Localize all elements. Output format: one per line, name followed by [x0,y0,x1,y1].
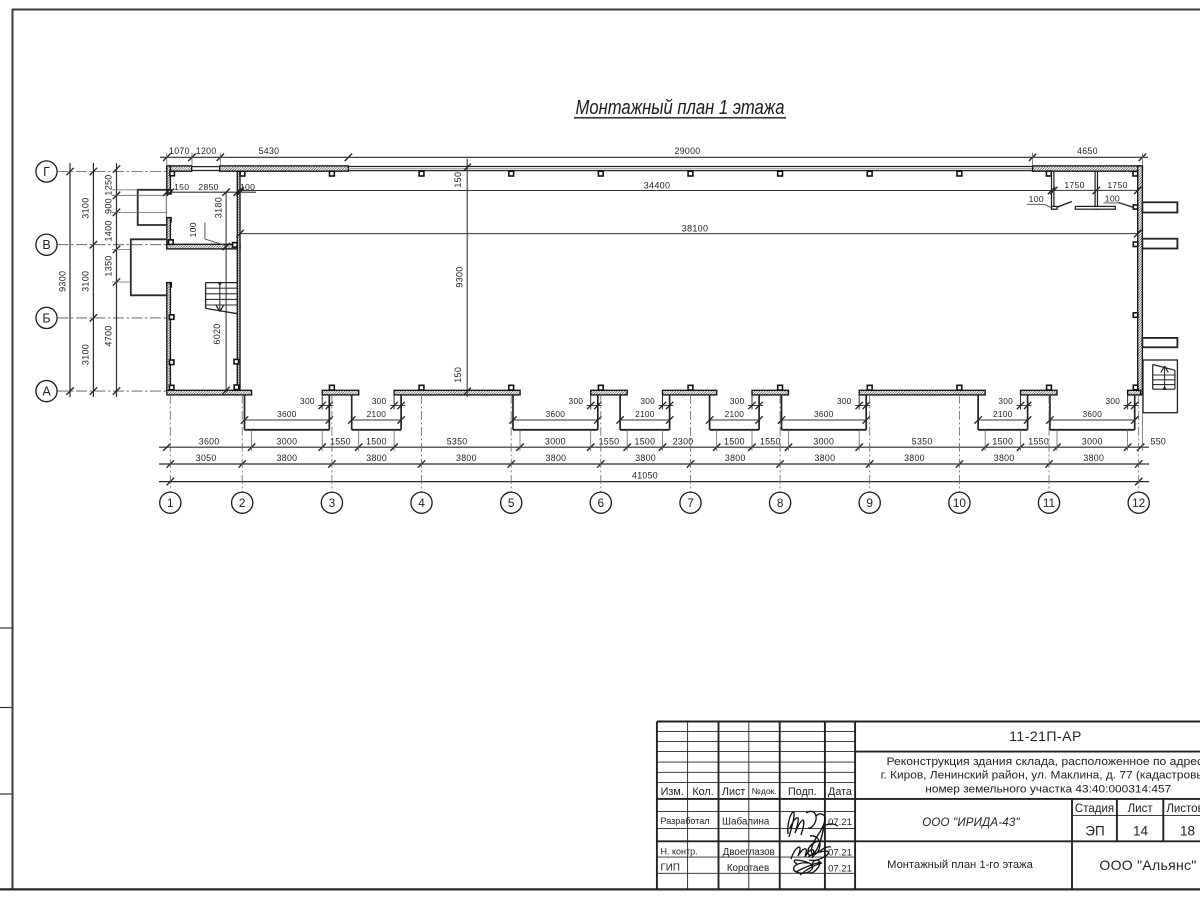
svg-text:38100: 38100 [682,223,709,233]
svg-text:150: 150 [453,172,463,188]
svg-text:3: 3 [329,496,336,510]
svg-text:18: 18 [1180,824,1195,839]
svg-text:2100: 2100 [725,409,745,419]
svg-text:3600: 3600 [277,409,297,419]
svg-text:Листов: Листов [1166,803,1200,815]
svg-text:3000: 3000 [545,437,566,447]
svg-text:Б: Б [42,311,50,325]
svg-text:300: 300 [837,396,852,406]
svg-text:ООО "ИРИДА-43": ООО "ИРИДА-43" [922,817,1020,829]
svg-text:3800: 3800 [456,453,477,463]
svg-text:2100: 2100 [635,409,655,419]
svg-text:Кол.: Кол. [692,786,713,798]
svg-text:Монтажный план 1-го этажа: Монтажный план 1-го этажа [887,859,1033,871]
svg-text:1: 1 [167,496,174,510]
svg-text:3800: 3800 [546,453,567,463]
svg-text:9300: 9300 [454,266,464,287]
svg-text:Стадия: Стадия [1075,803,1114,815]
svg-text:5350: 5350 [447,437,468,447]
svg-text:2: 2 [239,496,246,510]
svg-text:1550: 1550 [1028,437,1049,447]
svg-text:Н. контр.: Н. контр. [661,846,698,856]
svg-text:1350: 1350 [104,255,114,276]
svg-text:ООО "Альянс": ООО "Альянс" [1099,857,1196,873]
svg-text:1200: 1200 [196,146,217,156]
svg-text:11-21П-АР: 11-21П-АР [1009,728,1082,744]
svg-text:3800: 3800 [635,453,656,463]
svg-text:3000: 3000 [1082,437,1103,447]
svg-text:3800: 3800 [994,453,1015,463]
svg-text:4700: 4700 [104,325,114,346]
svg-text:В: В [42,238,50,252]
svg-text:Г: Г [43,165,50,179]
svg-text:1070: 1070 [169,146,190,156]
svg-text:14: 14 [1133,824,1149,839]
svg-text:1500: 1500 [992,437,1013,447]
svg-text:7: 7 [687,496,694,510]
svg-text:300: 300 [730,396,745,406]
svg-text:34400: 34400 [644,180,671,190]
svg-text:Разработал: Разработал [661,816,710,826]
svg-text:29000: 29000 [675,146,701,156]
svg-text:300: 300 [1105,396,1120,406]
svg-text:номер земельного участка 43:40: номер земельного участка 43:40:000314:45… [925,783,1171,795]
svg-text:5: 5 [508,496,515,510]
svg-text:11: 11 [1043,496,1055,510]
svg-text:3000: 3000 [277,437,298,447]
svg-text:Изм.: Изм. [661,786,684,798]
svg-text:Монтажный план 1 этажа: Монтажный план 1 этажа [576,96,785,119]
svg-text:9: 9 [866,496,873,510]
svg-text:1750: 1750 [1107,180,1127,190]
svg-text:5350: 5350 [912,437,933,447]
svg-text:3100: 3100 [81,197,91,218]
svg-text:12: 12 [1132,496,1145,510]
svg-text:550: 550 [1151,437,1167,447]
svg-text:300: 300 [300,396,315,406]
svg-text:ЭП: ЭП [1085,824,1104,839]
svg-text:3800: 3800 [277,453,298,463]
svg-text:2100: 2100 [367,409,387,419]
svg-text:1550: 1550 [760,437,781,447]
svg-text:300: 300 [998,396,1013,406]
svg-text:8: 8 [777,496,784,510]
svg-text:Шабалина: Шабалина [722,817,770,828]
svg-text:150: 150 [174,182,189,192]
svg-text:3800: 3800 [815,453,836,463]
svg-text:3600: 3600 [1082,409,1102,419]
svg-text:2100: 2100 [993,409,1013,419]
svg-text:07.21: 07.21 [828,817,852,828]
svg-text:3600: 3600 [546,409,566,419]
svg-text:4650: 4650 [1077,146,1098,156]
svg-text:1750: 1750 [1064,180,1084,190]
svg-text:2850: 2850 [198,182,218,192]
svg-text:150: 150 [453,367,463,383]
svg-text:3800: 3800 [725,453,746,463]
svg-text:Лист: Лист [1128,803,1154,815]
svg-text:1550: 1550 [330,437,351,447]
svg-text:3000: 3000 [813,437,834,447]
svg-text:3100: 3100 [81,344,91,365]
svg-text:3100: 3100 [81,271,91,292]
svg-text:3180: 3180 [213,197,223,218]
svg-text:г. Киров, Ленинский район, ул.: г. Киров, Ленинский район, ул. Маклина, … [881,770,1200,782]
svg-text:300: 300 [569,396,584,406]
svg-text:3800: 3800 [366,453,387,463]
svg-text:5430: 5430 [259,146,280,156]
svg-text:№док.: №док. [752,786,777,796]
svg-text:100: 100 [188,222,198,237]
svg-text:Двоеглазов: Двоеглазов [723,847,775,858]
svg-text:А: А [42,385,51,399]
svg-text:3600: 3600 [814,409,834,419]
svg-text:1550: 1550 [599,437,620,447]
svg-text:07.21: 07.21 [828,863,852,874]
svg-text:1500: 1500 [366,437,387,447]
svg-text:6020: 6020 [212,323,222,344]
svg-text:1500: 1500 [724,437,745,447]
svg-text:Подп.: Подп. [788,786,817,798]
svg-text:6: 6 [598,496,605,510]
svg-text:ГИП: ГИП [661,863,680,874]
svg-text:41050: 41050 [632,471,658,481]
svg-text:3800: 3800 [904,453,925,463]
svg-text:1500: 1500 [635,437,656,447]
svg-text:Реконструкция здания склада, р: Реконструкция здания склада, расположенн… [887,756,1200,768]
svg-text:300: 300 [640,396,655,406]
svg-text:Дата: Дата [828,786,852,798]
svg-text:1250: 1250 [104,174,114,195]
svg-text:10: 10 [953,496,967,510]
svg-text:4: 4 [418,496,425,510]
svg-text:300: 300 [372,396,387,406]
svg-text:900: 900 [104,198,114,214]
svg-text:3600: 3600 [199,437,220,447]
svg-text:3050: 3050 [196,453,217,463]
svg-text:1400: 1400 [104,220,114,241]
svg-text:Лист: Лист [722,786,746,798]
svg-text:100: 100 [1029,194,1044,204]
svg-text:9300: 9300 [58,271,68,292]
svg-text:3800: 3800 [1083,453,1104,463]
svg-text:Коротаев: Коротаев [727,863,769,874]
svg-text:07.21: 07.21 [828,847,852,858]
svg-text:100: 100 [1105,193,1120,203]
